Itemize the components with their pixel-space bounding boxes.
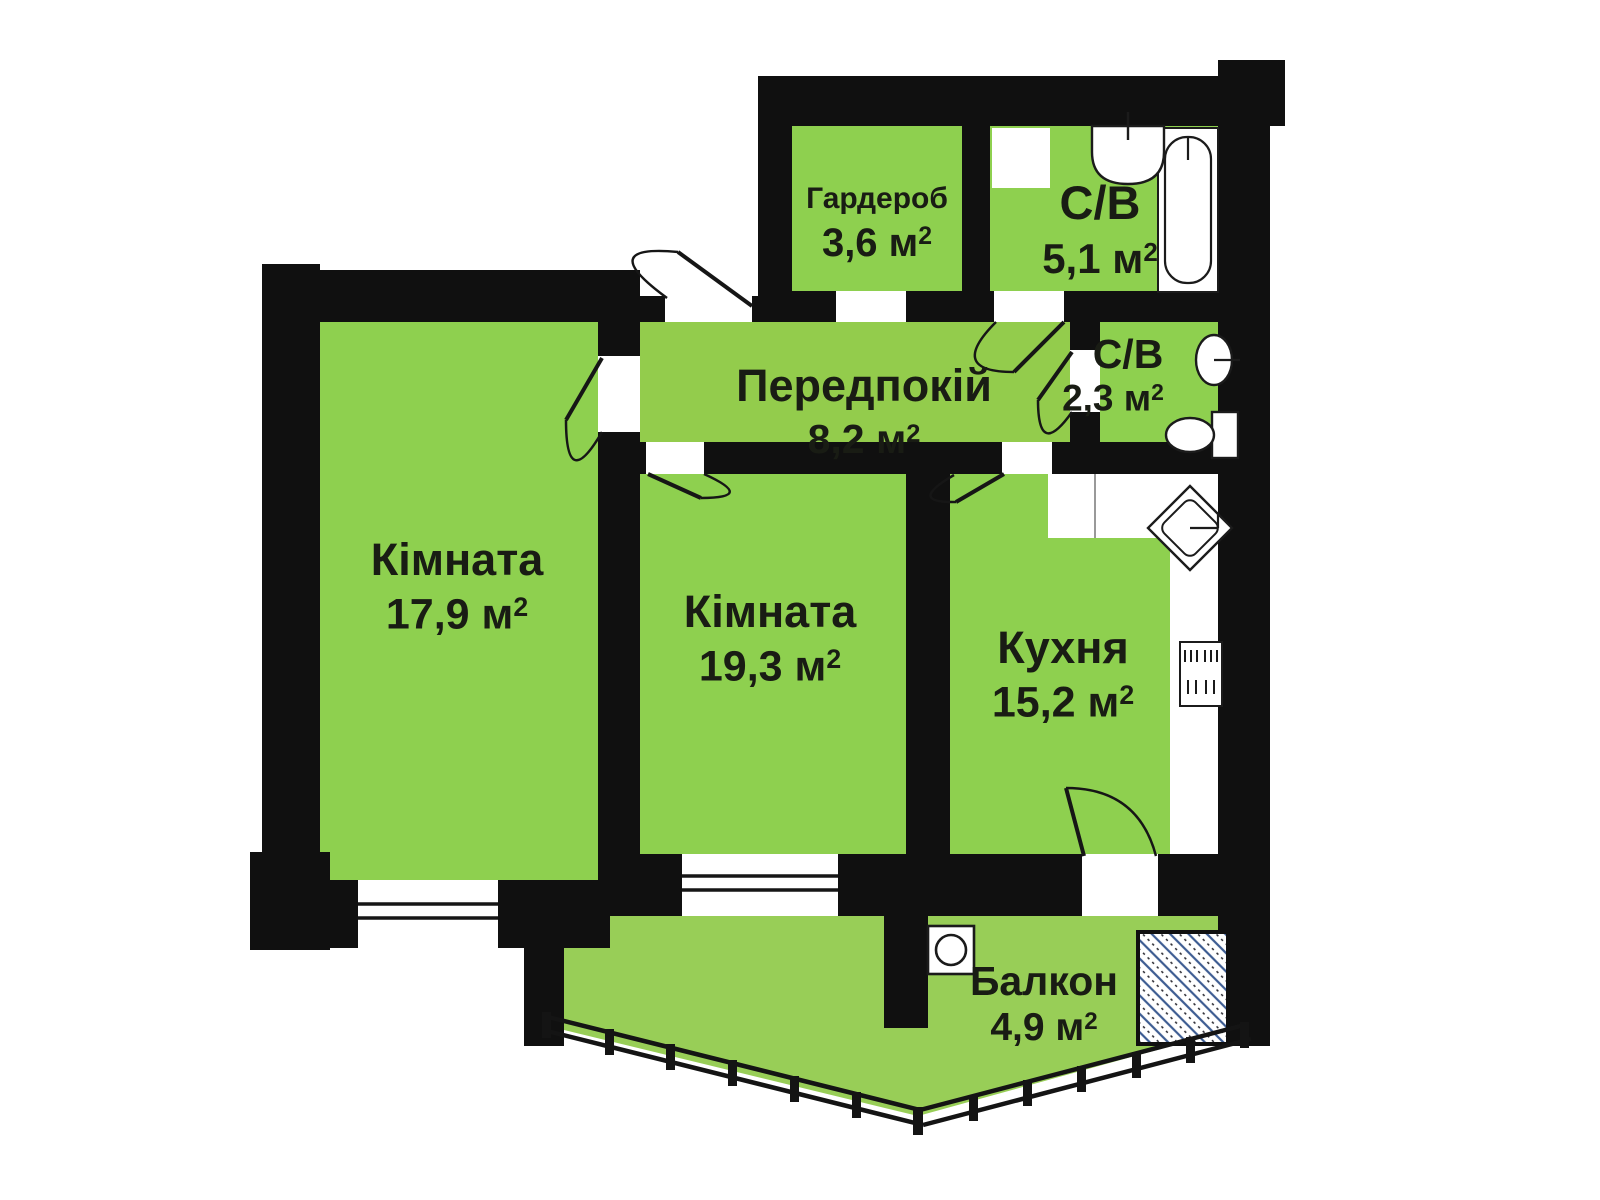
- wall-room2-kitchen: [906, 474, 950, 886]
- wall-top: [758, 76, 1230, 126]
- wall-right: [1218, 60, 1270, 1046]
- room1-opening: [598, 356, 640, 432]
- bath-large-opening: [994, 291, 1064, 322]
- label-kitchen: Кухня 15,2 м2: [992, 620, 1134, 730]
- wall-wardrobe-bath: [962, 126, 990, 311]
- room-area: 5,1 м2: [1042, 233, 1158, 286]
- room1-window-gap: [358, 880, 498, 948]
- room2-window-gap: [682, 854, 838, 916]
- room-name: Балкон: [970, 958, 1118, 1005]
- room-area: 8,2 м2: [736, 414, 992, 465]
- wardrobe-opening: [836, 291, 906, 322]
- label-room-2: Кімната 19,3 м2: [684, 584, 857, 694]
- room-area: 3,6 м2: [806, 218, 948, 268]
- label-bath-large: С/В 5,1 м2: [1042, 174, 1158, 285]
- kitchen-opening: [1002, 442, 1052, 474]
- room2-opening: [646, 442, 704, 474]
- stove-icon: [1180, 642, 1222, 706]
- label-hallway: Передпокій 8,2 м2: [736, 358, 992, 466]
- wall-left: [262, 270, 320, 884]
- room-area: 15,2 м2: [992, 676, 1134, 730]
- room-name: С/В: [1092, 332, 1164, 377]
- room-area: 4,9 м2: [970, 1005, 1118, 1051]
- label-bath-small: С/В 2,3 м2: [1092, 332, 1164, 419]
- wall-balcony-stub: [884, 916, 928, 1028]
- label-balcony: Балкон 4,9 м2: [970, 958, 1118, 1051]
- room-area: 17,9 м2: [371, 588, 544, 642]
- entrance-opening: [665, 296, 752, 322]
- room-area: 2,3 м2: [1062, 377, 1164, 419]
- bathtub-icon: [1158, 128, 1218, 292]
- balcony-opening: [1082, 854, 1158, 916]
- room-name: Передпокій: [736, 358, 992, 414]
- room-name: Кухня: [992, 620, 1134, 676]
- label-wardrobe: Гардероб 3,6 м2: [806, 180, 948, 268]
- room-name: Кімната: [684, 584, 857, 640]
- room-name: Гардероб: [806, 180, 948, 218]
- washing-machine-icon: [928, 926, 974, 974]
- room-name: Кімната: [371, 532, 544, 588]
- shaft-hatch-icon: [1138, 932, 1228, 1044]
- room-name: С/В: [1042, 174, 1158, 233]
- label-room-1: Кімната 17,9 м2: [371, 532, 544, 642]
- wall-wardrobe-left: [758, 126, 792, 322]
- floor-plan: Гардероб 3,6 м2 С/В 5,1 м2 Передпокій 8,…: [0, 0, 1600, 1200]
- wall-left-bottom-cap: [250, 852, 330, 950]
- room-area: 19,3 м2: [684, 640, 857, 694]
